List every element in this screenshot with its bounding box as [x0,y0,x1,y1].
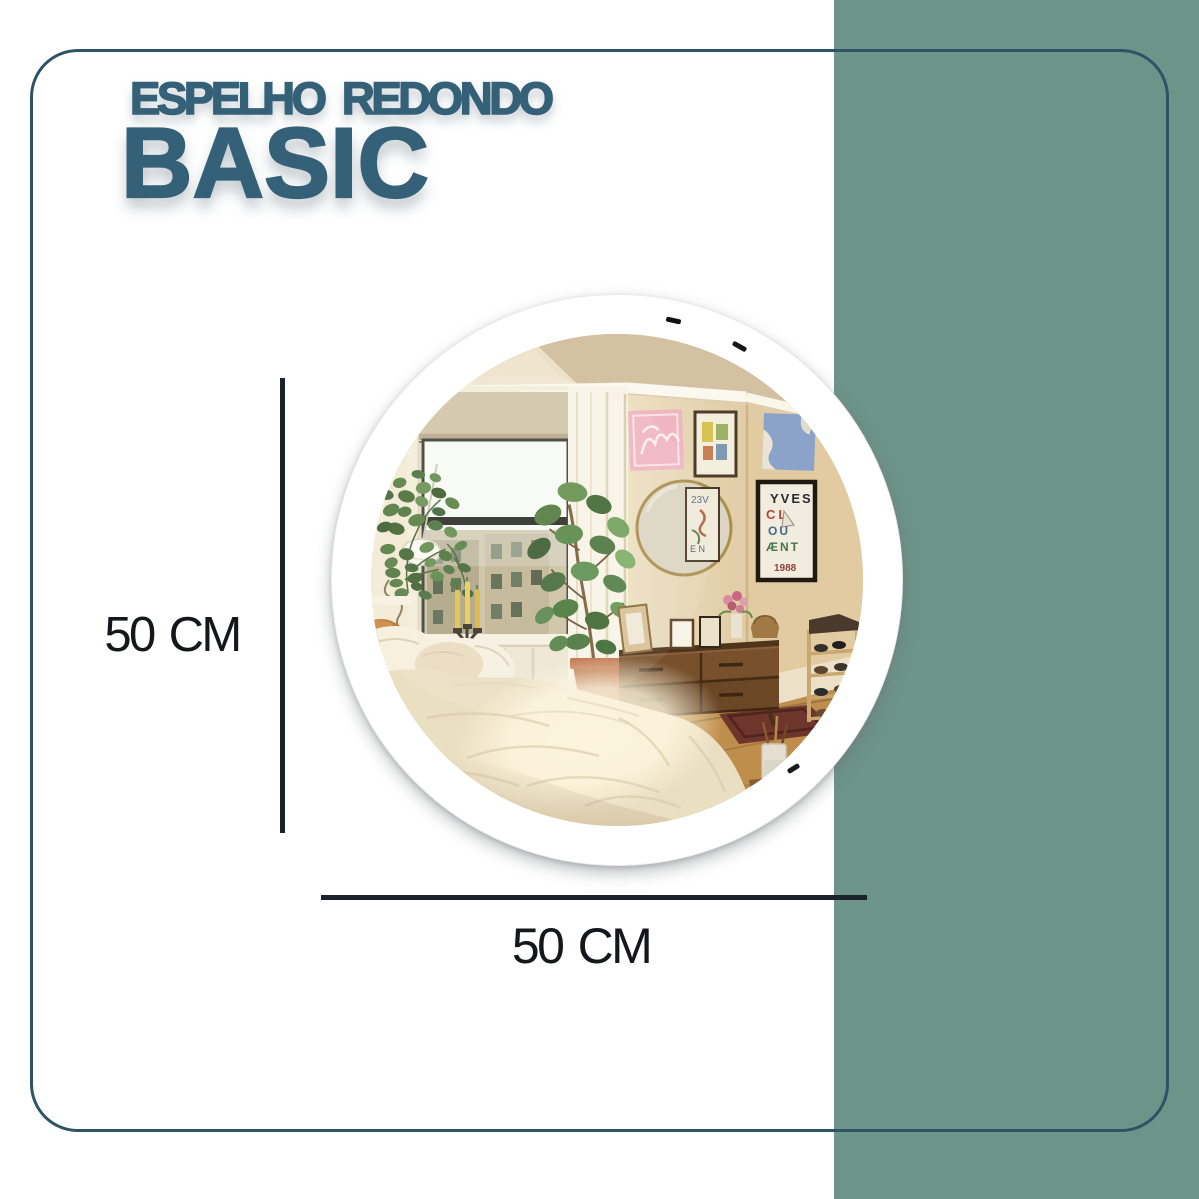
svg-text:OU: OU [768,524,790,538]
svg-text:1988: 1988 [774,563,797,574]
svg-text:YVES: YVES [770,491,813,506]
svg-text:ÆNT: ÆNT [766,540,800,554]
